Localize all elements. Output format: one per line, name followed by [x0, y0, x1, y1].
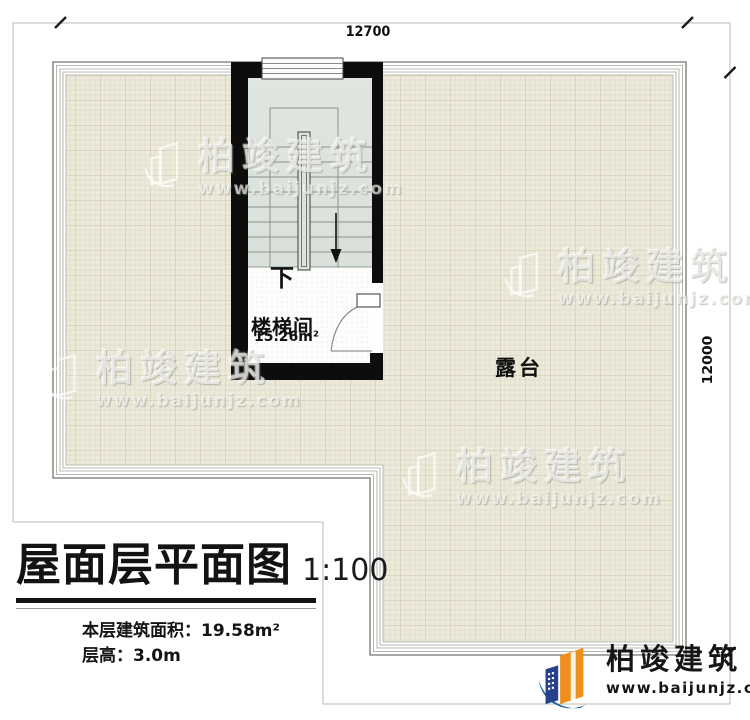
- drawing-scale: 1:100: [302, 553, 388, 588]
- brand-url: www.baijunjz.com: [606, 679, 750, 697]
- floor-plan-page: 柏竣建筑 www.baijunjz.com 柏竣建筑 www.baijunjz.…: [0, 0, 750, 720]
- floor-area-text: 本层建筑面积：19.58m²: [82, 619, 336, 644]
- page-title: 屋面层平面图: [16, 538, 292, 591]
- brand-name: 柏竣建筑: [606, 644, 750, 676]
- logo-building-icon: [528, 644, 600, 710]
- brand-logo: 柏竣建筑 www.baijunjz.com: [528, 644, 750, 710]
- stairwell-area-label: 15.26m²: [254, 329, 319, 345]
- stair-down-label: 下: [270, 258, 294, 293]
- floor-height-text: 层高：3.0m: [82, 644, 336, 669]
- terrace-label: 露台: [495, 352, 543, 382]
- dimension-right: 12000: [701, 330, 718, 390]
- title-underline-thin: [16, 608, 316, 609]
- window: [262, 58, 343, 79]
- dimension-top: 12700: [331, 24, 405, 40]
- title-underline-thick: [16, 598, 316, 603]
- stair-railing: [298, 132, 310, 270]
- title-block: 屋面层平面图1:100 本层建筑面积：19.58m² 层高：3.0m: [16, 528, 336, 668]
